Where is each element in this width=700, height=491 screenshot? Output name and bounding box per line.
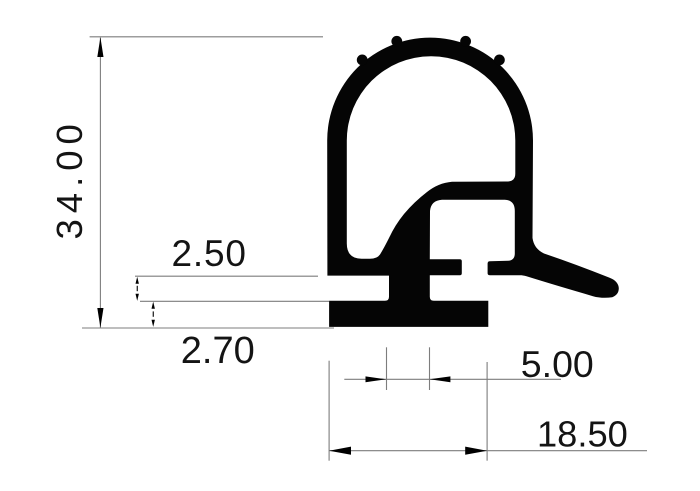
svg-text:18.50: 18.50 xyxy=(537,414,628,455)
svg-text:2.50: 2.50 xyxy=(172,233,247,274)
svg-text:5.00: 5.00 xyxy=(521,343,594,385)
svg-text:2.70: 2.70 xyxy=(181,330,255,372)
svg-text:34.00: 34.00 xyxy=(49,118,90,239)
